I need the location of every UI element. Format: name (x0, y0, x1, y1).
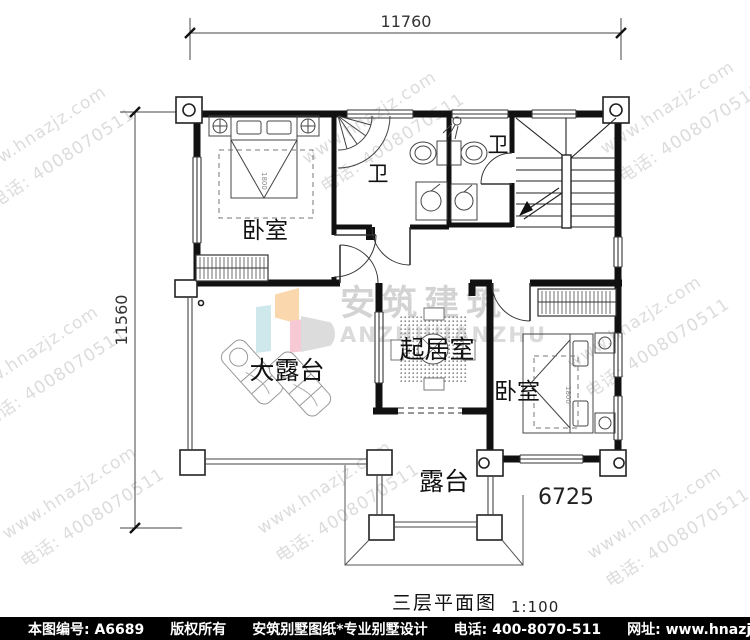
footer-bar: 本图编号: A6689 版权所有 安筑别墅图纸*专业别墅设计 电话: 400-8… (0, 617, 750, 640)
wardrobe-right (538, 289, 616, 316)
room-label-bath1: 卫 (368, 162, 389, 186)
terrace-large-rail (188, 298, 192, 450)
dim-top-value: 11760 (381, 12, 432, 31)
bed-size-label: 1800 (564, 386, 572, 404)
footer-copyright: 版权所有 (170, 619, 226, 639)
room-label-bedroom-right: 卧室 (494, 379, 540, 405)
radiator-left (196, 255, 268, 281)
drawing-title: 三层平面图 1:100 (388, 588, 559, 620)
room-label-terrace-large: 大露台 (249, 356, 324, 385)
drawing-title-text: 三层平面图 (388, 588, 501, 620)
dim-inner-value: 6725 (538, 485, 594, 510)
floor-plan-canvas: 11760 11560 (0, 0, 750, 617)
room-label-bath2: 卫 (488, 133, 509, 157)
room-label-terrace: 露台 (419, 467, 469, 496)
footer-brand: 安筑别墅图纸*专业别墅设计 (252, 619, 427, 639)
doors (334, 153, 530, 321)
walls (192, 111, 622, 464)
bed-size-label: 1800 (260, 172, 268, 190)
room-label-bedroom-left: 卧室 (242, 218, 288, 244)
dim-left-value: 11560 (112, 295, 131, 346)
bed-left (209, 116, 319, 218)
bathroom1-fixtures (338, 116, 447, 220)
footer-site: 网址: www.hnazjz.com (627, 619, 750, 639)
staircase (516, 118, 616, 228)
footer-phone: 电话: 400-8070-511 (454, 619, 602, 639)
room-label-living: 起居室 (399, 335, 474, 364)
drawing-sheet: www.hnazjz.com 电话: 4008070511 www.hnazjz… (0, 0, 750, 640)
footer-number: 本图编号: A6689 (28, 619, 144, 639)
